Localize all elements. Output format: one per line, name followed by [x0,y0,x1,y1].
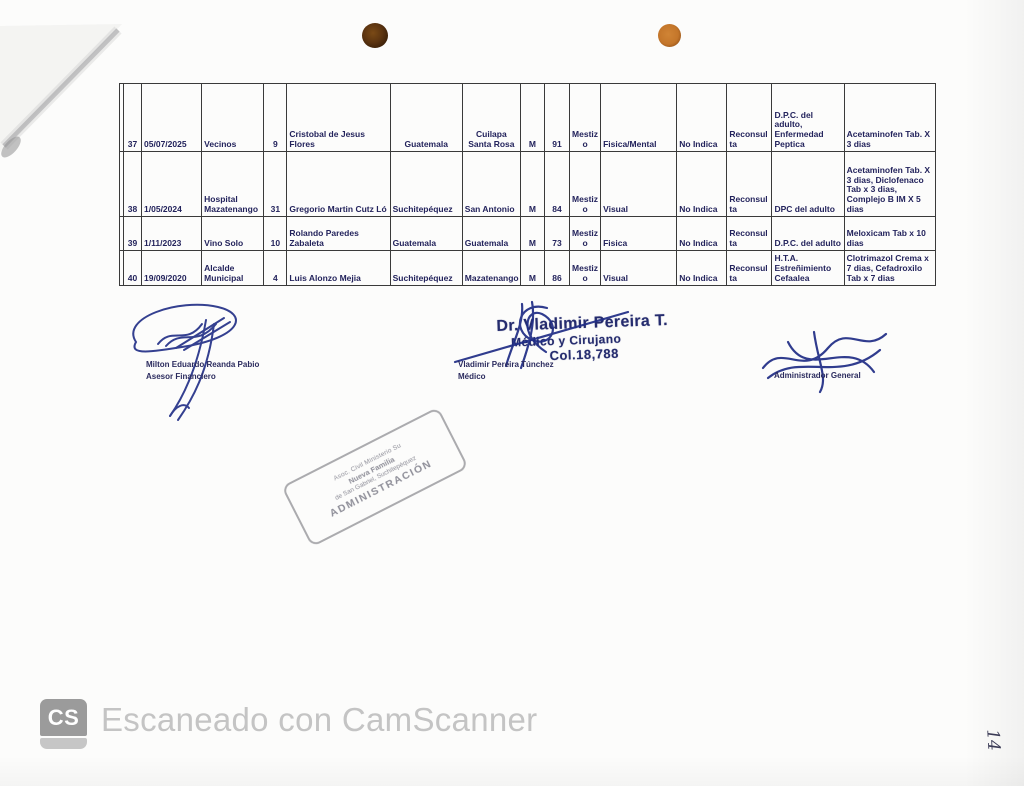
cell-row-number: 39 [124,217,142,251]
cell-date: 1/05/2024 [142,152,202,217]
cell-referral: Alcalde Municipal [202,251,264,286]
cell-visit-type: Reconsulta [727,251,772,286]
cell-department: Guatemala [390,84,462,152]
patient-records-table: 37 05/07/2025 Vecinos 9 Cristobal de Jes… [119,83,936,286]
signature-right [758,322,898,397]
cell-sex: M [520,217,544,251]
cell-referral: Vino Solo [202,217,264,251]
cell-diagnosis: DPC del adulto [772,152,844,217]
cell-row-number: 37 [124,84,142,152]
camscanner-icon: CS [40,699,87,750]
signatory-right-title-block: Administrador General [774,370,861,382]
cell-sex: M [520,251,544,286]
cell-condition: Fisica/Mental [601,84,677,152]
table-row: 38 1/05/2024 Hospital Mazatenango 31 Gre… [120,152,936,217]
cell-condition: Visual [601,152,677,217]
cell-age: 86 [544,251,569,286]
camscanner-icon-strip [40,738,87,749]
cell-age: 91 [544,84,569,152]
cell-referral: Hospital Mazatenango [202,152,264,217]
cell-visit-type: Reconsulta [727,152,772,217]
scan-bottom-shadow [0,756,1024,786]
cell-department: Suchitepéquez [390,152,462,217]
cell-indicator: No Indica [677,84,727,152]
cell-visit-type: Reconsulta [727,84,772,152]
cell-age: 84 [544,152,569,217]
cell-referral: Vecinos [202,84,264,152]
cell-visit-type: Reconsulta [727,217,772,251]
cell-condition: Fisica [601,217,677,251]
cell-indicator: No Indica [677,152,727,217]
cell-date: 1/11/2023 [142,217,202,251]
cell-row-number: 40 [124,251,142,286]
doctor-stamp-license: Col.18,788 [549,344,669,363]
cell-age: 73 [544,217,569,251]
cell-num: 4 [264,251,287,286]
cell-ethnicity: Mestizo [570,217,601,251]
signatory-left-name-block: Milton Eduardo Reanda Pabio Asesor Finan… [146,359,259,383]
cell-condition: Visual [601,251,677,286]
cell-num: 9 [264,84,287,152]
cell-name: Cristobal de Jesus Flores [287,84,390,152]
handwritten-page-number: 14 [982,729,1003,752]
signatory-center-name-block: Vladimir Pereira Túnchez Médico [458,359,554,383]
table-row: 40 19/09/2020 Alcalde Municipal 4 Luis A… [120,251,936,286]
cell-department: Suchitepéquez [390,251,462,286]
cell-diagnosis: D.P.C. del adulto, Enfermedad Peptica [772,84,844,152]
cell-ethnicity: Mestizo [570,152,601,217]
cell-diagnosis: H.T.A. Estreñimiento Cefaalea [772,251,844,286]
doctor-ink-stamp: Dr. Vladimir Pereira T. Médico y Cirujan… [496,312,669,365]
administration-stamp: Asoc. Civil Ministerio Su Nueva Familia … [281,407,469,547]
punch-hole-right [658,24,681,47]
cell-treatment: Meloxicam Tab x 10 dias [844,217,935,251]
cell-sex: M [520,152,544,217]
cell-municipality: Mazatenango [462,251,520,286]
cell-treatment: Acetaminofen Tab. X 3 dias [844,84,935,152]
cell-diagnosis: D.P.C. del adulto [772,217,844,251]
cell-department: Guatemala [390,217,462,251]
cell-indicator: No Indica [677,251,727,286]
cell-num: 31 [264,152,287,217]
cell-ethnicity: Mestizo [570,84,601,152]
cell-treatment: Acetaminofen Tab. X 3 dias, Diclofenaco … [844,152,935,217]
scanned-document-page: 37 05/07/2025 Vecinos 9 Cristobal de Jes… [0,0,1024,786]
cell-num: 10 [264,217,287,251]
cell-indicator: No Indica [677,217,727,251]
camscanner-icon-letters: CS [40,699,87,736]
cell-name: Gregorio Martin Cutz Ló [287,152,390,217]
signatory-left-title: Asesor Financiero [146,371,259,383]
cell-name: Rolando Paredes Zabaleta [287,217,390,251]
cell-municipality: San Antonio [462,152,520,217]
cell-sex: M [520,84,544,152]
cell-row-number: 38 [124,152,142,217]
signatory-center-name: Vladimir Pereira Túnchez [458,359,554,371]
cell-date: 19/09/2020 [142,251,202,286]
punch-hole-left [362,23,388,48]
signatory-center-title: Médico [458,371,554,383]
scan-edge-shadow [964,0,1024,786]
cell-name: Luis Alonzo Mejia [287,251,390,286]
cell-municipality: Guatemala [462,217,520,251]
cell-ethnicity: Mestizo [570,251,601,286]
table-row: 39 1/11/2023 Vino Solo 10 Rolando Parede… [120,217,936,251]
signatory-left-name: Milton Eduardo Reanda Pabio [146,359,259,371]
signatory-right-title: Administrador General [774,370,861,382]
cell-date: 05/07/2025 [142,84,202,152]
cell-treatment: Clotrimazol Crema x 7 dias, Cefadroxilo … [844,251,935,286]
camscanner-watermark-text: Escaneado con CamScanner [101,701,537,739]
cell-municipality: Cuilapa Santa Rosa [462,84,520,152]
table-row: 37 05/07/2025 Vecinos 9 Cristobal de Jes… [120,84,936,152]
